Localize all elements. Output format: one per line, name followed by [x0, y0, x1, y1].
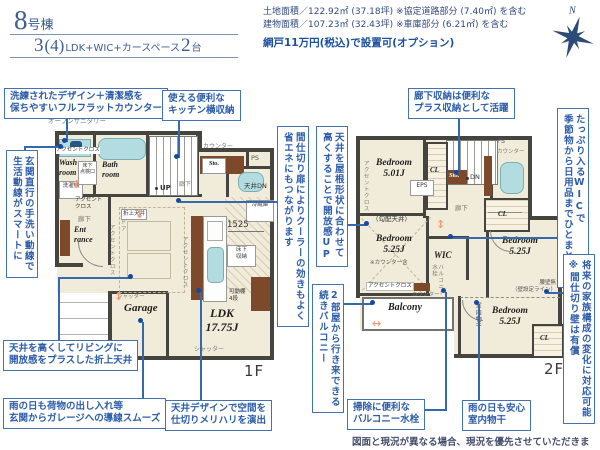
- bedroom2-note: ※カウンター含: [370, 260, 408, 267]
- compass-icon: N: [550, 2, 596, 60]
- wall: [466, 236, 469, 280]
- shoe-cabinet: [60, 220, 70, 256]
- leader-dot: [474, 300, 479, 305]
- accent-cross-label: アクセントクロス: [56, 147, 100, 154]
- callout-coffered-ceiling: 天井を高くしてリビングに 開放感をプラスした折上天井: [3, 340, 138, 371]
- leader-line: [24, 146, 60, 148]
- dimension-line: [228, 231, 264, 232]
- porch-step: [58, 334, 108, 335]
- toilet-2f: [500, 162, 524, 194]
- bedroom1-label: Bedroom 5.01J: [368, 158, 420, 181]
- ps-label: PS: [497, 138, 505, 146]
- eps-box: EPS: [410, 180, 434, 196]
- leader-dot: [544, 289, 549, 294]
- bathtub: [98, 138, 146, 160]
- flow-arrow: ↕: [114, 290, 123, 303]
- callout-entrance-flow: 玄関直行の手洗い動線で 生活動線がスマートに: [6, 150, 38, 278]
- floorplan-flyer: 8号棟 3 (4) LDK+WIC+カースペース 2 台 土地面積／122.92…: [0, 0, 600, 450]
- disclaimer-text: 図面と現況が異なる場合、現況を優先させていただきます。: [352, 434, 600, 450]
- callout-partition-eco: 間仕切り扉によりクーラーの効きもよく 省エネにもつながります: [277, 126, 309, 327]
- cl-label: CL: [540, 334, 549, 342]
- leader-dot: [370, 300, 375, 305]
- leader-line: [548, 292, 564, 294]
- callout-flat-counter: 洗練されたデザイン＋清潔感を 保ちやすいフルフラットカウンター: [4, 88, 168, 119]
- fridge-space: 冷蔵庫: [246, 200, 274, 222]
- porch-step: [58, 318, 108, 319]
- bedroom4-label: Bedroom 5.25J: [482, 306, 538, 329]
- leader-line: [58, 277, 60, 341]
- leader-line: [200, 292, 202, 401]
- future-wall-line: [460, 297, 560, 298]
- closet-cl1: [426, 142, 448, 210]
- movable-shelf: [251, 277, 270, 311]
- shelf-label: 可動棚 4段: [229, 289, 246, 302]
- callout-continuous-balcony: 2部屋から行き来できる 続きバルコニー: [312, 284, 344, 413]
- callout-future-partition: 将来の家族構成の変化に対応可能 ※間仕切り壁は有償: [563, 254, 595, 424]
- counter-label: カウンター: [203, 143, 233, 150]
- leader-line: [180, 201, 278, 203]
- porch-step: [58, 302, 108, 303]
- leader-dot: [364, 221, 369, 226]
- plan-desc: LDK+WIC+カースペース: [65, 39, 180, 54]
- leader-dot: [128, 274, 133, 279]
- f2-exterior-cut: [358, 331, 454, 358]
- plan-num: 3: [34, 35, 44, 57]
- leader-dot: [138, 318, 143, 323]
- screen-option-note: 網戸11万円(税込)で設置可(オプション): [263, 35, 553, 50]
- stove: [207, 221, 223, 241]
- sloped-ceiling-label: （勾配天井）: [372, 216, 411, 224]
- garage-label: Garage: [124, 302, 158, 315]
- accent-cross-label: アクセント クロス: [75, 197, 102, 210]
- closet-cl2: [484, 198, 530, 232]
- area-info: 土地面積／122.92㎡ (37.18坪) ※協定道路部分 (7.40㎡) を含…: [263, 6, 553, 50]
- ps-label: PS: [251, 155, 259, 163]
- plan-type: 3 (4) LDK+WIC+カースペース 2 台: [34, 35, 202, 57]
- balcony-label: Balcony: [388, 302, 422, 314]
- floor-1f-label: 1F: [244, 362, 264, 380]
- cl-label: CL: [498, 210, 507, 218]
- hallway-label: 廊下: [455, 205, 468, 213]
- furniture: [127, 253, 171, 279]
- leader-dot: [176, 198, 181, 203]
- leader-dot: [62, 138, 67, 143]
- leader-dot: [448, 234, 453, 239]
- shutter-label: シャッター: [194, 346, 224, 353]
- hall-storage: Sto.: [202, 158, 226, 174]
- dimension-label: 1525: [227, 220, 249, 230]
- callout-kitchen-storage: 使える便利な キッチン横収納: [162, 90, 241, 121]
- flow-arrow: ↕: [72, 178, 81, 191]
- flow-arrow: ↕: [135, 208, 144, 221]
- stairs-down-label: DN: [470, 174, 480, 182]
- leader-line: [142, 322, 144, 399]
- leader-line: [452, 237, 557, 239]
- wall: [458, 296, 461, 356]
- accent-cross-label: アクセントクロス: [366, 282, 414, 291]
- wall: [358, 136, 532, 140]
- callout-hall-storage: 廊下収納は便利な プラス収納として活躍: [408, 88, 515, 119]
- callout-garage-flow: 雨の日も荷物の出し入れ等 玄関からガレージへの導線スムーズ: [3, 398, 166, 429]
- bedroom2-label: Bedroom 5.25J: [366, 234, 422, 257]
- sto-label: Sto.: [209, 160, 219, 167]
- plan-paren: (4): [45, 36, 65, 56]
- stairs-up-label: UP: [160, 184, 171, 192]
- leader-line: [58, 277, 132, 279]
- wic-label: WIC: [434, 250, 452, 261]
- plan-cars-unit: 台: [192, 39, 202, 54]
- flow-arrow: ↔: [372, 317, 381, 330]
- hallway-label: 廊下: [179, 181, 191, 188]
- leader-line: [445, 292, 447, 411]
- leader-line: [340, 303, 372, 305]
- callout-indoor-drying: 雨の日も安心 室内物干: [462, 400, 531, 431]
- leader-dot: [174, 154, 179, 159]
- cl-label: CL: [430, 166, 439, 174]
- wall: [356, 136, 360, 298]
- building-number: 8: [14, 5, 28, 35]
- bath-room-label: Bath room: [102, 160, 119, 179]
- accent-cross-label: アクセントクロス: [108, 224, 115, 276]
- counter-strip: [484, 156, 492, 196]
- building-area: 建物面積／107.23㎡ (32.43坪) ※車庫部分 (6.21㎡) を含む: [263, 19, 553, 32]
- wall: [166, 293, 169, 356]
- leader-dot: [441, 288, 446, 293]
- wall: [246, 150, 249, 168]
- compass-n-label: N: [568, 5, 577, 16]
- leader-dot: [58, 144, 63, 149]
- bedroom3-label: Bedroom 5.25J: [492, 236, 548, 259]
- callout-high-ceiling: 天井を屋根形状に合わせて 高くすることで開放感UP: [316, 126, 348, 267]
- leader-dot: [454, 170, 459, 175]
- accent-cross-label: アクセントクロス: [181, 236, 188, 288]
- dn-dot: [466, 177, 469, 180]
- flow-arrow: ↕: [436, 218, 445, 231]
- land-area: 土地面積／122.92㎡ (37.18坪) ※協定道路部分 (7.40㎡) を含…: [263, 6, 553, 19]
- leader-dot: [196, 288, 201, 293]
- hallway-label: 廊下: [78, 216, 91, 224]
- header-divider-bottom: [10, 57, 238, 58]
- leader-line: [458, 116, 460, 174]
- leader-line: [178, 118, 180, 158]
- wash-room-label: Wash room: [59, 158, 77, 177]
- counter-label: カウンター: [497, 149, 525, 156]
- callout-ceiling-design: 天井デザインで空間を 仕切りメリハリを演出: [165, 400, 272, 431]
- entrance-label: Ent rance: [74, 225, 93, 244]
- ldk-label: LDK 17.75J: [196, 306, 248, 335]
- building-suffix: 号棟: [28, 18, 54, 33]
- open-sanitary-label: オープンサニタリー: [48, 118, 106, 126]
- building-title: 8号棟: [14, 5, 54, 36]
- counter-label: カウンター: [412, 292, 440, 299]
- leader-line: [478, 304, 480, 401]
- plan-cars: 2: [181, 35, 191, 57]
- wall: [55, 263, 83, 267]
- underfloor-storage: 床下 収納: [227, 245, 256, 267]
- up-dot: [155, 187, 158, 190]
- callout-balcony-tap: 掃除に便利な バルコニー水栓: [347, 399, 425, 430]
- ceiling-down-label: 天井DN: [244, 183, 267, 191]
- furniture: [127, 221, 171, 251]
- kitchen-sink: [207, 247, 224, 283]
- floor-2f-label: 2F: [544, 360, 564, 378]
